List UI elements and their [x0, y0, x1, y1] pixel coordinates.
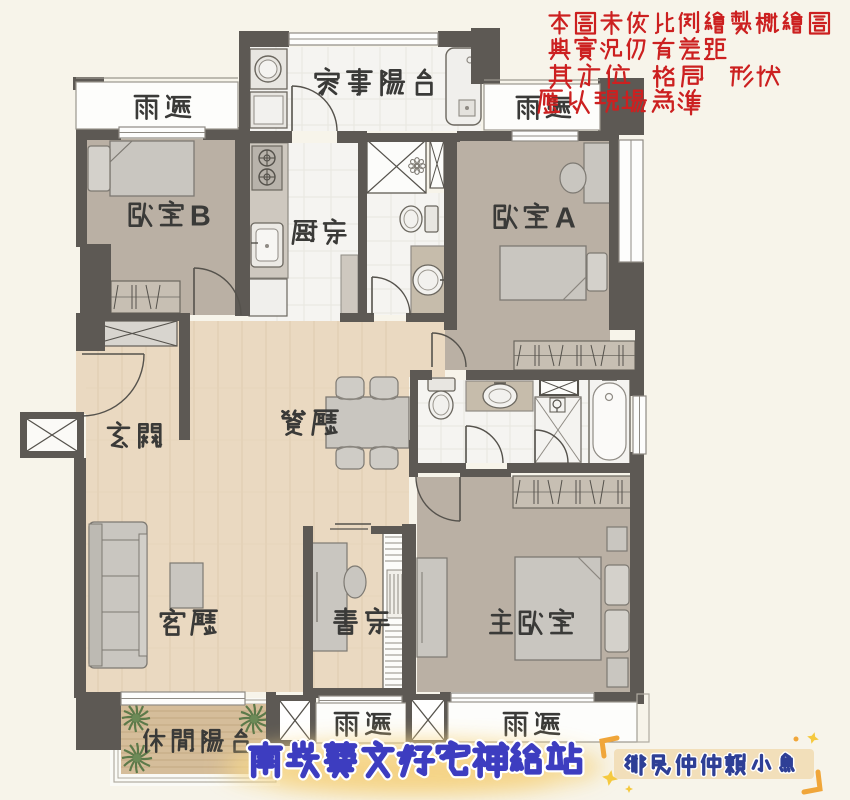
svg-text:A: A [555, 203, 576, 235]
svg-text:B: B [190, 201, 211, 233]
